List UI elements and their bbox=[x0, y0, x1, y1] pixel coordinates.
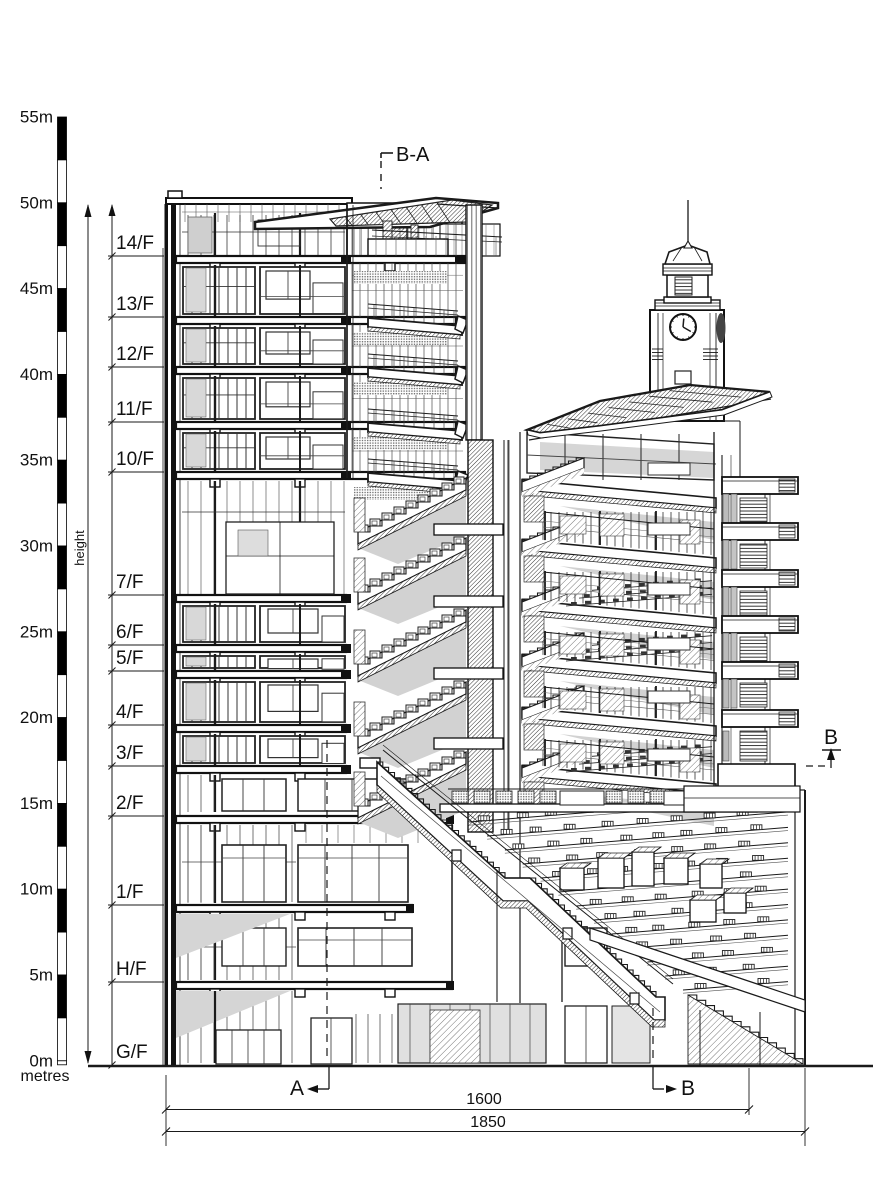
svg-text:B: B bbox=[681, 1077, 695, 1100]
svg-text:12/F: 12/F bbox=[116, 344, 154, 365]
svg-text:3/F: 3/F bbox=[116, 743, 143, 764]
svg-text:7/F: 7/F bbox=[116, 572, 143, 593]
svg-text:50m: 50m bbox=[20, 193, 53, 212]
svg-text:2/F: 2/F bbox=[116, 793, 143, 814]
svg-text:H/F: H/F bbox=[116, 959, 147, 980]
svg-text:45m: 45m bbox=[20, 279, 53, 298]
svg-text:5/F: 5/F bbox=[116, 648, 143, 669]
svg-text:55m: 55m bbox=[20, 108, 53, 127]
svg-text:11/F: 11/F bbox=[116, 399, 153, 420]
svg-text:A: A bbox=[290, 1077, 304, 1100]
svg-text:5m: 5m bbox=[29, 966, 53, 985]
svg-text:15m: 15m bbox=[20, 794, 53, 813]
svg-text:metres: metres bbox=[21, 1068, 70, 1085]
svg-text:13/F: 13/F bbox=[116, 294, 154, 315]
svg-text:10m: 10m bbox=[20, 880, 53, 899]
svg-text:25m: 25m bbox=[20, 622, 53, 641]
svg-text:20m: 20m bbox=[20, 708, 53, 727]
svg-text:B: B bbox=[824, 726, 838, 749]
svg-text:35m: 35m bbox=[20, 451, 53, 470]
svg-text:10/F: 10/F bbox=[116, 449, 154, 470]
svg-text:G/F: G/F bbox=[116, 1042, 148, 1063]
svg-text:14/F: 14/F bbox=[116, 233, 154, 254]
svg-text:30m: 30m bbox=[20, 537, 53, 556]
svg-text:1/F: 1/F bbox=[116, 882, 143, 903]
svg-text:40m: 40m bbox=[20, 365, 53, 384]
svg-text:4/F: 4/F bbox=[116, 702, 143, 723]
svg-text:height: height bbox=[72, 530, 87, 566]
svg-text:1600: 1600 bbox=[466, 1091, 502, 1108]
svg-text:6/F: 6/F bbox=[116, 622, 143, 643]
svg-text:B-A: B-A bbox=[396, 144, 430, 166]
svg-text:1850: 1850 bbox=[470, 1114, 506, 1131]
